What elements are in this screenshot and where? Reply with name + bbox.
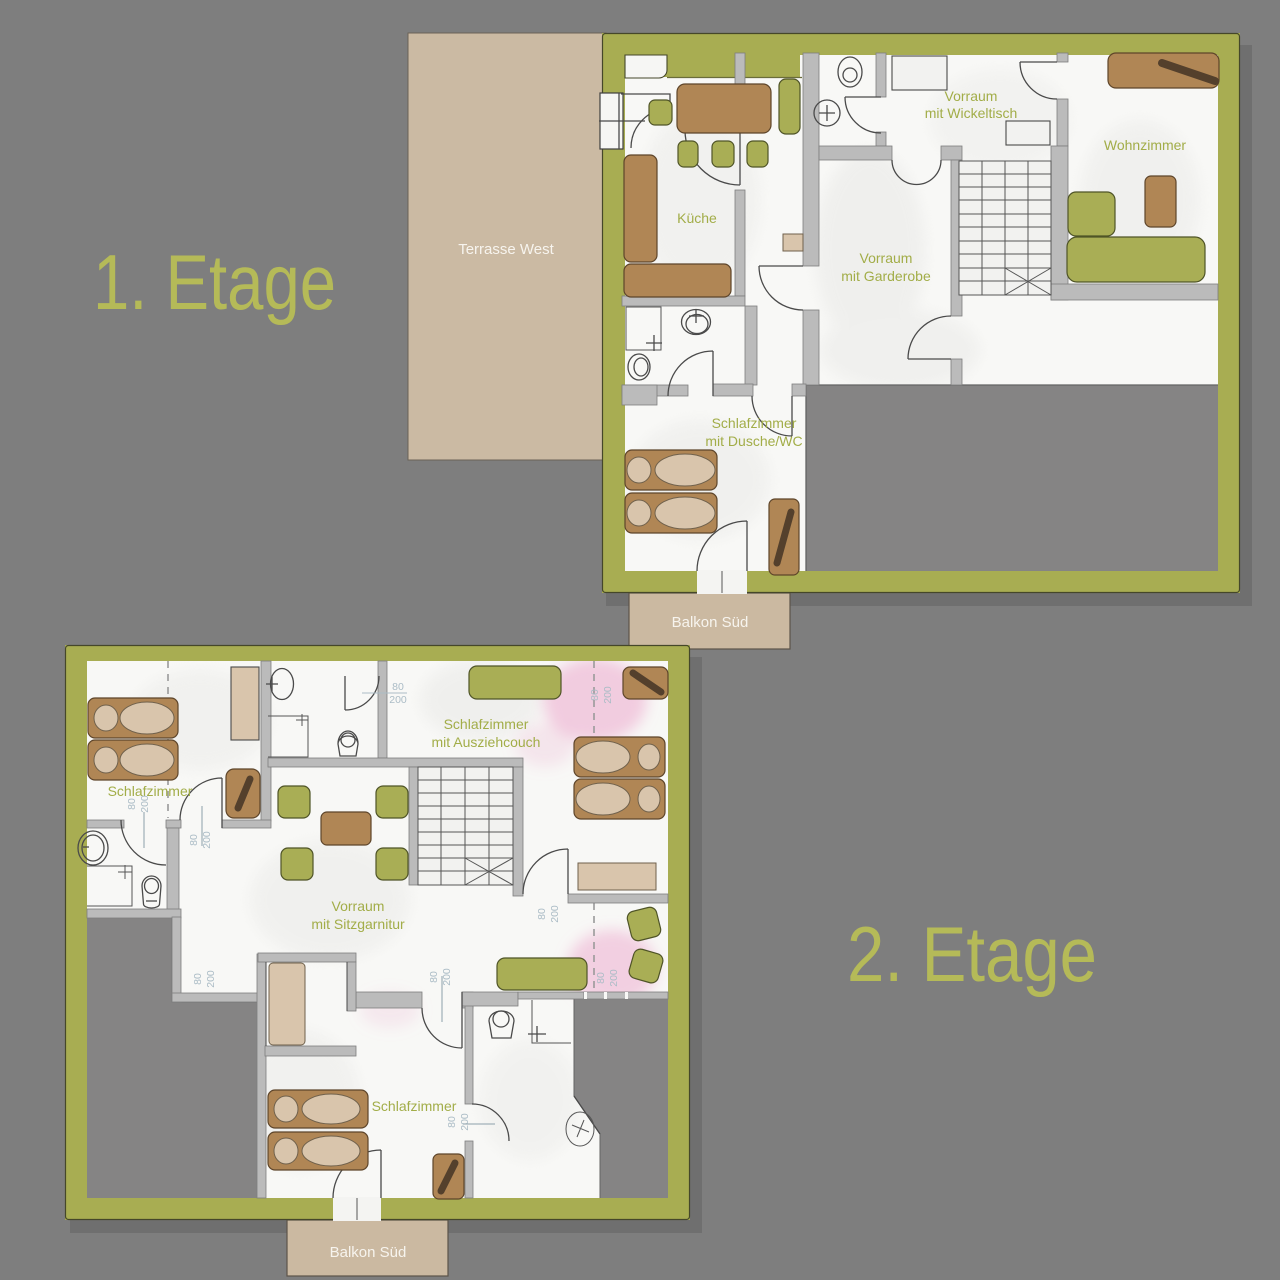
svg-text:200: 200	[549, 905, 561, 923]
svg-text:mit Wickeltisch: mit Wickeltisch	[925, 105, 1018, 121]
svg-text:mit Ausziehcouch: mit Ausziehcouch	[432, 734, 541, 750]
svg-text:Balkon Süd: Balkon Süd	[330, 1244, 407, 1261]
svg-text:1. Etage: 1. Etage	[93, 238, 336, 326]
svg-text:200: 200	[602, 686, 614, 704]
svg-text:mit Sitzgarnitur: mit Sitzgarnitur	[311, 916, 405, 932]
svg-text:mit Garderobe: mit Garderobe	[841, 268, 931, 284]
svg-text:Küche: Küche	[677, 210, 717, 226]
svg-text:80: 80	[428, 971, 440, 983]
svg-text:200: 200	[139, 795, 151, 813]
svg-text:80: 80	[536, 908, 548, 920]
svg-text:80: 80	[595, 972, 607, 984]
svg-text:80: 80	[392, 681, 404, 693]
svg-text:Balkon Süd: Balkon Süd	[672, 614, 749, 631]
svg-text:Terrasse West: Terrasse West	[458, 241, 554, 258]
svg-text:200: 200	[608, 969, 620, 987]
svg-text:80: 80	[188, 834, 200, 846]
svg-text:Schlafzimmer: Schlafzimmer	[712, 415, 797, 431]
svg-text:Vorraum: Vorraum	[945, 88, 998, 104]
svg-text:200: 200	[205, 970, 217, 988]
svg-text:200: 200	[459, 1113, 471, 1131]
svg-text:200: 200	[441, 968, 453, 986]
svg-text:80: 80	[192, 973, 204, 985]
svg-text:Schlafzimmer: Schlafzimmer	[372, 1098, 457, 1114]
svg-text:mit Dusche/WC: mit Dusche/WC	[705, 433, 802, 449]
svg-text:80: 80	[446, 1116, 458, 1128]
svg-text:Vorraum: Vorraum	[332, 898, 385, 914]
svg-text:Vorraum: Vorraum	[860, 250, 913, 266]
svg-text:2. Etage: 2. Etage	[847, 910, 1097, 998]
svg-text:200: 200	[201, 831, 213, 849]
svg-text:80: 80	[589, 689, 601, 701]
svg-text:Wohnzimmer: Wohnzimmer	[1104, 137, 1187, 153]
svg-text:200: 200	[389, 694, 407, 706]
svg-text:80: 80	[126, 798, 138, 810]
svg-text:Schlafzimmer: Schlafzimmer	[444, 716, 529, 732]
